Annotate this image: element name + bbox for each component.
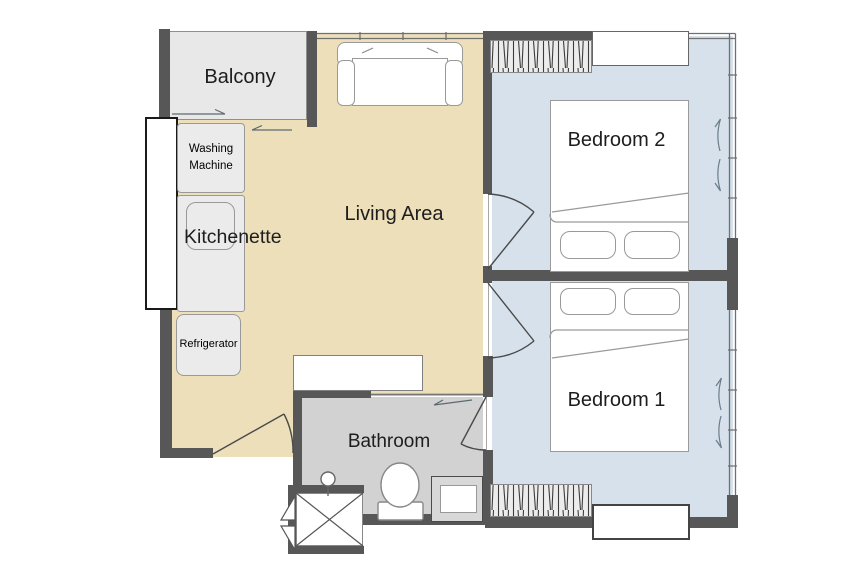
bedroom2-label: Bedroom 2: [520, 129, 713, 152]
bedroom1-door-swing: [488, 283, 534, 358]
wardrobe-hatch-bedroom1: [491, 485, 591, 516]
bedroom2-door-swing: [488, 194, 534, 269]
window-opening-arrows-bedroom1: [716, 378, 722, 448]
toilet: [378, 463, 423, 520]
floor-plan: Washing Machine Refrigerator: [0, 0, 866, 577]
balcony-sliding-door-arrows: [172, 110, 292, 131]
shaft-double-doors: [281, 496, 295, 550]
entrance-door-swing: [213, 414, 293, 454]
bed2-blanket-lines: [550, 193, 689, 222]
shaft-cross: [296, 493, 363, 546]
shower-fixture: [321, 472, 335, 496]
kitchenette-label: Kitchenette: [184, 226, 282, 249]
sofa-cushion-marks: [362, 48, 438, 53]
living-area-label: Living Area: [294, 203, 494, 226]
wardrobe-hatch-bedroom2: [491, 41, 591, 72]
bedroom1-label: Bedroom 1: [520, 389, 713, 412]
bathroom-sliding-door-arrow: [434, 400, 472, 405]
plan-linework: [0, 0, 866, 577]
window-opening-arrows-bedroom2: [715, 119, 721, 191]
bed1-blanket-lines: [550, 330, 689, 358]
bathroom-label: Bathroom: [299, 431, 479, 453]
balcony-label: Balcony: [172, 66, 308, 89]
